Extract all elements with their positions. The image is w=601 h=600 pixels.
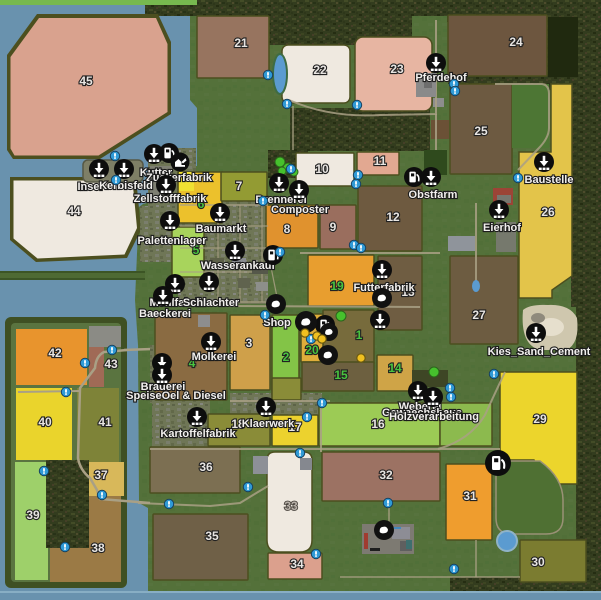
- svg-text:11: 11: [374, 154, 387, 168]
- svg-text:3: 3: [246, 336, 253, 350]
- svg-text:Zuckerfabrik: Zuckerfabrik: [146, 172, 213, 184]
- svg-text:Kies_Sand_Cement: Kies_Sand_Cement: [488, 346, 591, 358]
- svg-text:2: 2: [283, 350, 290, 364]
- svg-text:29: 29: [533, 412, 547, 426]
- svg-text:Kartoffelfabrik: Kartoffelfabrik: [160, 428, 236, 440]
- svg-text:Pferdehof: Pferdehof: [415, 72, 467, 84]
- svg-text:45: 45: [79, 74, 93, 88]
- svg-text:30: 30: [531, 555, 545, 569]
- svg-text:25: 25: [474, 124, 488, 138]
- svg-text:Palettenlager: Palettenlager: [137, 235, 207, 247]
- svg-text:42: 42: [48, 346, 62, 360]
- svg-text:Obstfarm: Obstfarm: [409, 189, 458, 201]
- svg-text:32: 32: [379, 468, 393, 482]
- svg-text:Composter: Composter: [271, 204, 330, 216]
- svg-text:SpeiseOel & Diesel: SpeiseOel & Diesel: [126, 390, 226, 402]
- svg-text:Baustelle: Baustelle: [525, 174, 574, 186]
- svg-text:19: 19: [330, 279, 344, 293]
- svg-text:Zellstofffabrik: Zellstofffabrik: [134, 193, 208, 205]
- svg-text:7: 7: [236, 179, 243, 193]
- svg-text:43: 43: [104, 357, 118, 371]
- svg-text:38: 38: [91, 541, 105, 555]
- svg-text:22: 22: [313, 63, 327, 77]
- svg-text:Baumarkt: Baumarkt: [196, 223, 247, 235]
- svg-text:34: 34: [290, 557, 304, 571]
- svg-text:33: 33: [284, 499, 298, 513]
- svg-text:31: 31: [463, 489, 477, 503]
- svg-text:40: 40: [38, 415, 52, 429]
- svg-text:9: 9: [330, 220, 337, 234]
- svg-text:44: 44: [67, 204, 81, 218]
- svg-text:Kerbisfeld: Kerbisfeld: [99, 180, 153, 192]
- svg-text:1: 1: [356, 328, 363, 342]
- svg-text:Klaerwerk: Klaerwerk: [242, 418, 295, 430]
- svg-text:37: 37: [94, 468, 108, 482]
- svg-text:26: 26: [541, 205, 555, 219]
- svg-text:15: 15: [334, 368, 348, 382]
- svg-text:12: 12: [386, 210, 400, 224]
- svg-text:36: 36: [199, 460, 213, 474]
- svg-text:Holzverarbeitung: Holzverarbeitung: [389, 411, 479, 423]
- svg-text:21: 21: [234, 36, 248, 50]
- svg-text:16: 16: [371, 417, 385, 431]
- svg-text:14: 14: [388, 361, 402, 375]
- svg-text:Baeckerei: Baeckerei: [139, 308, 191, 320]
- svg-text:Molkerei: Molkerei: [192, 351, 237, 363]
- svg-text:27: 27: [472, 308, 486, 322]
- svg-text:Eierhof: Eierhof: [483, 222, 521, 234]
- svg-text:10: 10: [315, 162, 329, 176]
- svg-text:20: 20: [305, 343, 319, 357]
- svg-text:Schlachter: Schlachter: [183, 297, 240, 309]
- svg-text:8: 8: [284, 222, 291, 236]
- svg-text:41: 41: [98, 415, 112, 429]
- svg-text:23: 23: [390, 62, 404, 76]
- svg-text:39: 39: [26, 508, 40, 522]
- svg-text:Wasserankauf: Wasserankauf: [201, 260, 276, 272]
- svg-text:35: 35: [205, 529, 219, 543]
- svg-text:24: 24: [509, 35, 523, 49]
